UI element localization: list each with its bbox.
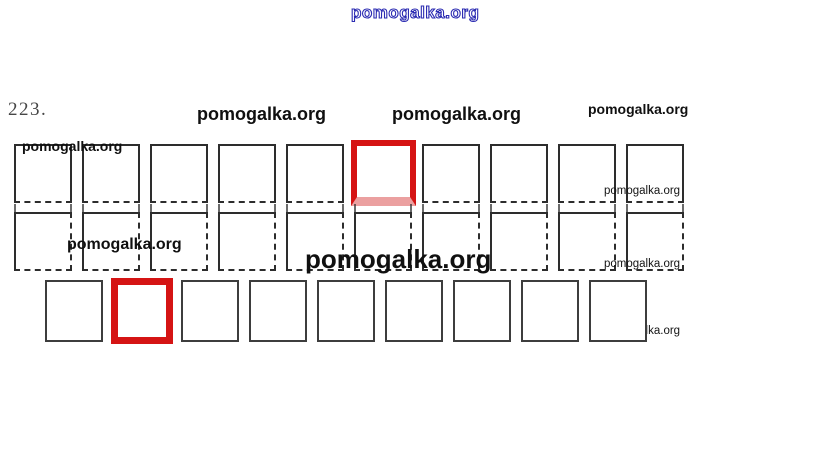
- highlighted-square: [351, 140, 416, 206]
- square: [453, 280, 511, 342]
- square: [218, 212, 276, 271]
- watermark-center-large: pomogalka.org: [305, 246, 491, 272]
- square: [521, 280, 579, 342]
- watermark-middle-row-overlay: pomogalka.org: [67, 237, 182, 253]
- square: [589, 280, 647, 342]
- square: [249, 280, 307, 342]
- tick-fragment: [354, 204, 412, 212]
- square: [45, 280, 103, 342]
- watermark-mid-right: pomogalka.org: [588, 102, 688, 116]
- border-tick-fragments: [14, 204, 684, 212]
- tick-fragment: [286, 204, 344, 212]
- tick-fragment: [82, 204, 140, 212]
- square: [286, 144, 344, 203]
- watermark-top-blue: pomogalka.org: [351, 4, 479, 21]
- tick-fragment: [218, 204, 276, 212]
- tick-fragment: [558, 204, 616, 212]
- tick-fragment: [150, 204, 208, 212]
- bottom-row-of-squares: [45, 280, 647, 342]
- square: [150, 144, 208, 203]
- square: [14, 212, 72, 271]
- square: [317, 280, 375, 342]
- square: [490, 212, 548, 271]
- tick-fragment: [490, 204, 548, 212]
- square: [385, 280, 443, 342]
- watermark-mid-left: pomogalka.org: [197, 105, 326, 123]
- scanned-exercise-page: pomogalka.org 223. pomogalka.org pomogal…: [0, 0, 823, 450]
- exercise-number: 223.: [8, 99, 47, 121]
- square: [181, 280, 239, 342]
- square: [218, 144, 276, 203]
- highlighted-square: [111, 278, 173, 344]
- watermark-right-1: pomogalka.org: [604, 186, 680, 198]
- tick-fragment: [422, 204, 480, 212]
- tick-fragment: [14, 204, 72, 212]
- watermark-right-2: pomogalka.org: [604, 259, 680, 271]
- square: [490, 144, 548, 203]
- tick-fragment: [626, 204, 684, 212]
- watermark-top-row-overlay: pomogalka.org: [22, 139, 122, 153]
- watermark-mid-center: pomogalka.org: [392, 105, 521, 123]
- square: [422, 144, 480, 203]
